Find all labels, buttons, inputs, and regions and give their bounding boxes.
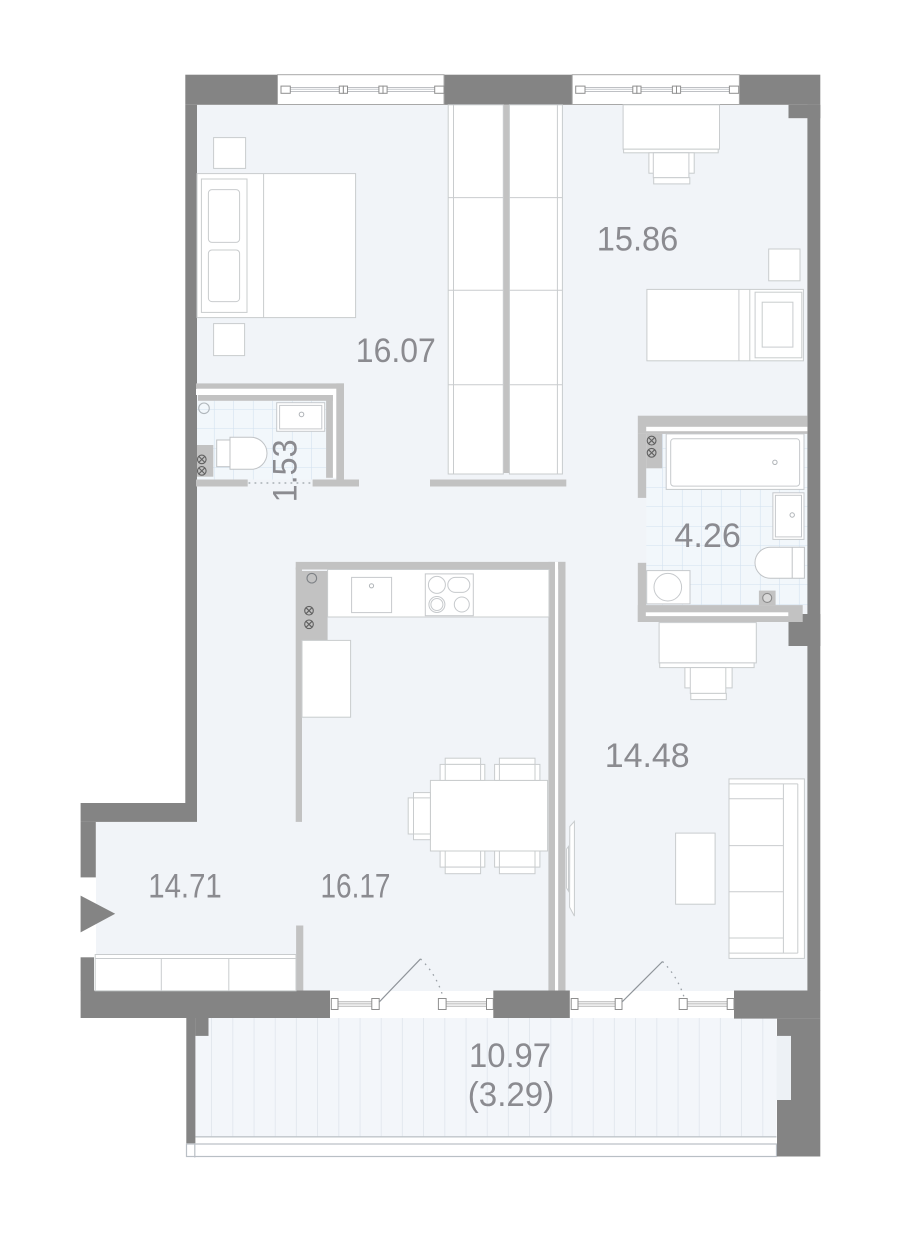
svg-text:(3.29): (3.29) xyxy=(468,1076,555,1114)
svg-text:4.26: 4.26 xyxy=(674,517,741,555)
svg-text:10.97: 10.97 xyxy=(469,1037,551,1075)
svg-text:16.17: 16.17 xyxy=(321,868,391,906)
svg-text:14.48: 14.48 xyxy=(605,737,690,775)
svg-text:14.71: 14.71 xyxy=(148,868,222,906)
svg-text:15.86: 15.86 xyxy=(597,221,679,259)
svg-text:16.07: 16.07 xyxy=(356,332,436,370)
svg-text:1.53: 1.53 xyxy=(267,439,305,502)
